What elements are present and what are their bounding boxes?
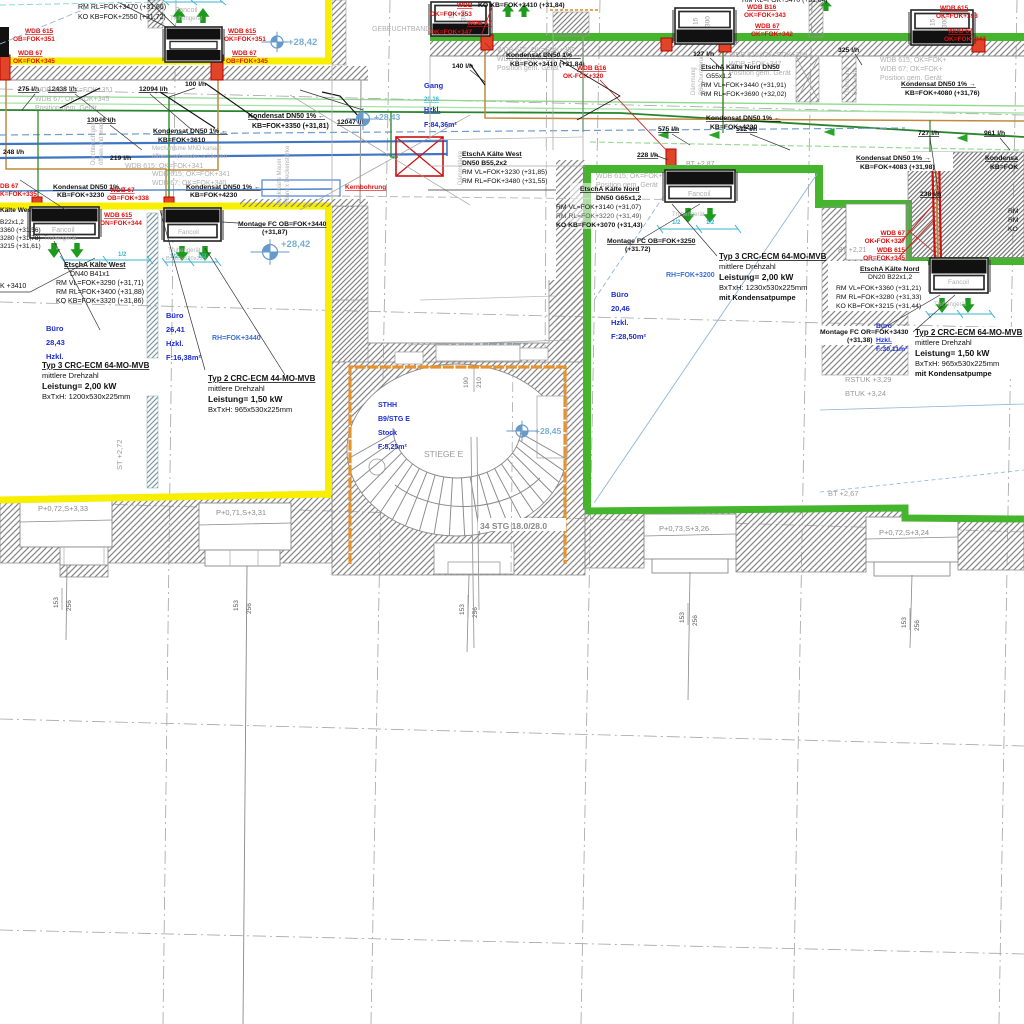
svg-text:mit Kondensatpumpe: mit Kondensatpumpe — [719, 293, 796, 302]
svg-text:3360 (+31,56): 3360 (+31,56) — [0, 227, 41, 234]
svg-text:256: 256 — [692, 615, 699, 626]
svg-text:OK=FOK+347: OK=FOK+347 — [430, 29, 472, 36]
svg-text:P+0,72,S+3,33: P+0,72,S+3,33 — [38, 504, 88, 513]
svg-text:228 l/h: 228 l/h — [637, 152, 658, 159]
svg-text:KB=FOK+3410 (+31,84): KB=FOK+3410 (+31,84) — [510, 61, 585, 68]
svg-text:mittlere Drehzahl: mittlere Drehzahl — [208, 384, 265, 393]
svg-text:Fancoil: Fancoil — [175, 7, 198, 14]
svg-text:STIEGE E: STIEGE E — [424, 449, 464, 459]
svg-text:F:28,50m²: F:28,50m² — [611, 332, 647, 341]
svg-text:WDB 67: WDB 67 — [467, 20, 492, 27]
svg-text:KB=FOK+3610: KB=FOK+3610 — [158, 137, 205, 144]
svg-text:RM VL=FOK+3440 (+31,91): RM VL=FOK+3440 (+31,91) — [701, 82, 786, 89]
svg-text:1/2: 1/2 — [706, 220, 715, 226]
svg-text:3215 (+31,61): 3215 (+31,61) — [0, 243, 41, 250]
svg-text:OB=FOK+345: OB=FOK+345 — [226, 58, 268, 65]
svg-text:ON=FOK+344: ON=FOK+344 — [100, 220, 142, 227]
svg-text:Leistung= 1,50 kW: Leistung= 1,50 kW — [208, 394, 283, 404]
svg-text:Gang: Gang — [424, 81, 444, 90]
svg-text:WDB 67; OK=FOK+: WDB 67; OK=FOK+ — [880, 66, 943, 73]
svg-text:EtschA Kälte Nord: EtschA Kälte Nord — [860, 266, 919, 273]
svg-text:F:16,38m²: F:16,38m² — [166, 353, 202, 362]
svg-text:Typ 3 CRC-ECM 64-MO-MVB: Typ 3 CRC-ECM 64-MO-MVB — [42, 361, 150, 370]
svg-text:OK=FOK+345: OK=FOK+345 — [13, 58, 55, 65]
svg-text:153: 153 — [901, 617, 908, 628]
svg-text:727 l/h: 727 l/h — [918, 130, 939, 137]
svg-text:WDB B16: WDB B16 — [577, 65, 607, 72]
svg-text:KO KB=FOK+3215 (+31,44): KO KB=FOK+3215 (+31,44) — [836, 303, 921, 310]
svg-text:OR=FOK+345: OR=FOK+345 — [863, 255, 905, 262]
svg-text:256: 256 — [914, 620, 921, 631]
svg-text:BTUK +3,24: BTUK +3,24 — [845, 389, 886, 398]
svg-text:1/2: 1/2 — [672, 220, 681, 226]
svg-text:1/2: 1/2 — [198, 254, 207, 260]
svg-text:OK=FOK+342: OK=FOK+342 — [751, 31, 793, 38]
svg-text:Montage FC OB=FOK+3250: Montage FC OB=FOK+3250 — [607, 238, 696, 245]
svg-text:RM RL=FOK+3480 (+31,55): RM RL=FOK+3480 (+31,55) — [462, 178, 548, 185]
svg-text:Kondensat DN50 1% ←: Kondensat DN50 1% ← — [153, 128, 228, 135]
svg-text:EtschA Kälte Nord DN50: EtschA Kälte Nord DN50 — [701, 64, 780, 71]
svg-text:Truhengerät: Truhengerät — [672, 212, 705, 218]
svg-text:WDB B16: WDB B16 — [747, 4, 777, 11]
svg-text:WDB 615; OK=FOK+341: WDB 615; OK=FOK+341 — [152, 171, 230, 178]
svg-text:Büro: Büro — [611, 290, 629, 299]
svg-text:KB=FOK+4080 (+31,76): KB=FOK+4080 (+31,76) — [905, 90, 980, 97]
svg-text:RM VL=FOK+3230 (+31,85): RM VL=FOK+3230 (+31,85) — [462, 169, 547, 176]
svg-text:210: 210 — [476, 377, 483, 388]
svg-text:961 l/h: 961 l/h — [984, 130, 1005, 137]
svg-text:KB=FOK: KB=FOK — [990, 164, 1018, 171]
svg-text:Hzkl.: Hzkl. — [611, 318, 629, 327]
svg-text:Büro: Büro — [166, 311, 184, 320]
svg-text:(+31.72): (+31.72) — [625, 246, 651, 253]
svg-text:OK=FOK+347: OK=FOK+347 — [944, 36, 986, 43]
svg-text:20,46: 20,46 — [611, 304, 630, 313]
svg-text:575 l/h: 575 l/h — [658, 126, 679, 133]
svg-text:Typ 2 CRC-ECM 44-MO-MVB: Typ 2 CRC-ECM 44-MO-MVB — [208, 374, 316, 383]
svg-text:WDB 615; OK=FOK+: WDB 615; OK=FOK+ — [596, 173, 663, 180]
svg-text:STHH: STHH — [378, 402, 397, 409]
svg-text:Fancoil: Fancoil — [688, 191, 711, 198]
svg-text:mittlere Drehzahl: mittlere Drehzahl — [915, 338, 972, 347]
svg-text:BxTxH: 1230x530x225mm: BxTxH: 1230x530x225mm — [719, 283, 807, 292]
svg-text:KB=FOK+3230: KB=FOK+3230 — [57, 192, 104, 199]
svg-text:RM RL=FOK+3280 (+31,33): RM RL=FOK+3280 (+31,33) — [836, 294, 922, 301]
svg-text:mit Kondensatpumpe: mit Kondensatpumpe — [915, 369, 992, 378]
svg-text:153: 153 — [459, 604, 466, 615]
svg-text:DB 67: DB 67 — [0, 183, 19, 190]
svg-text:RM VL=FOK+3360 (+31,21): RM VL=FOK+3360 (+31,21) — [836, 285, 921, 292]
svg-text:Rückwärts Mauer: Rückwärts Mauer — [277, 158, 283, 205]
svg-text:EtschA Kälte West: EtschA Kälte West — [462, 151, 522, 158]
svg-text:DN50 G65x1,2: DN50 G65x1,2 — [596, 195, 642, 202]
svg-text:Stock: Stock — [378, 430, 397, 437]
svg-text:ST +2,72: ST +2,72 — [115, 439, 124, 470]
svg-text:(+31,87): (+31,87) — [262, 229, 288, 236]
svg-text:WDB 67: WDB 67 — [110, 187, 135, 194]
svg-text:K +3410: K +3410 — [0, 283, 26, 290]
svg-text:KO KB=FOK+3410 (+31,84): KO KB=FOK+3410 (+31,84) — [478, 2, 565, 9]
svg-text:OB=FOK+351: OB=FOK+351 — [13, 36, 55, 43]
svg-text:WDB 615: WDB 615 — [877, 247, 906, 254]
svg-text:Leistung= 2,00 kW: Leistung= 2,00 kW — [42, 381, 117, 391]
svg-text:P+0,71,S+3,31: P+0,71,S+3,31 — [216, 508, 266, 517]
svg-text:KB=FOK+4230: KB=FOK+4230 — [190, 192, 237, 199]
svg-text:1/2: 1/2 — [118, 252, 127, 258]
svg-text:Büro: Büro — [876, 323, 892, 330]
svg-text:100 l/h: 100 l/h — [185, 81, 206, 88]
svg-text:KO KB=FOK+3070 (+31,43): KO KB=FOK+3070 (+31,43) — [556, 222, 643, 229]
svg-text:Kondensat DN50 1% ←: Kondensat DN50 1% ← — [706, 115, 781, 122]
svg-text:Truhengerät: Truhengerät — [44, 236, 77, 242]
svg-text:öffnen und wieder: öffnen und wieder — [99, 117, 105, 165]
svg-text:KB=FOK+4083 (+31,98): KB=FOK+4083 (+31,98) — [860, 164, 935, 171]
svg-text:190: 190 — [463, 377, 470, 388]
svg-text:1/2: 1/2 — [170, 254, 179, 260]
svg-text:256: 256 — [246, 603, 253, 614]
svg-text:12094 l/h: 12094 l/h — [139, 86, 168, 93]
svg-text:Kondensat DN50 1% →: Kondensat DN50 1% → — [856, 155, 931, 162]
svg-text:256: 256 — [66, 600, 73, 611]
svg-text:öffnen und wieder schließen: öffnen und wieder schließen — [152, 154, 227, 160]
svg-text:B22x1,2: B22x1,2 — [0, 219, 24, 226]
svg-text:153: 153 — [679, 612, 686, 623]
svg-text:BT +2,21: BT +2,21 — [838, 247, 867, 254]
svg-text:P+0,72,S+3,24: P+0,72,S+3,24 — [879, 528, 929, 537]
svg-text:OK=FOK+353: OK=FOK+353 — [430, 11, 472, 18]
svg-text:DN20 B22x1,2: DN20 B22x1,2 — [868, 274, 912, 281]
svg-text:Kernbohrung: Kernbohrung — [345, 184, 386, 191]
svg-text:WDB 615; OK=FOK+369: WDB 615; OK=FOK+369 — [729, 52, 807, 59]
svg-text:RH=FOK+3440: RH=FOK+3440 — [212, 335, 261, 342]
svg-text:B60 Durchbruch: B60 Durchbruch — [699, 52, 705, 95]
svg-text:BT +2,87: BT +2,87 — [686, 161, 715, 168]
svg-text:(+31,38): (+31,38) — [847, 337, 873, 344]
svg-text:RM: RM — [1008, 217, 1019, 224]
svg-text:mittlere Drehzahl: mittlere Drehzahl — [42, 371, 99, 380]
svg-text:RM RL=FOK+3220 (+31,49): RM RL=FOK+3220 (+31,49) — [556, 213, 642, 220]
svg-text:Durchbruch gem.: Durchbruch gem. — [91, 119, 97, 165]
svg-text:153: 153 — [53, 597, 60, 608]
svg-text:RM RL=FOK+3690 (+32,02): RM RL=FOK+3690 (+32,02) — [701, 91, 787, 98]
svg-text:Position gem. Gerät: Position gem. Gerät — [596, 182, 658, 189]
svg-text:Kälte West: Kälte West — [0, 207, 34, 214]
svg-text:Fancoil: Fancoil — [948, 279, 970, 286]
svg-text:P+0,73,S+3,26: P+0,73,S+3,26 — [659, 524, 709, 533]
svg-text:Position gem. Gerät: Position gem. Gerät — [35, 105, 97, 112]
svg-text:Mechanisme MND kanaal: Mechanisme MND kanaal — [152, 146, 221, 152]
svg-text:RM VL=FOK+3140 (+31,07): RM VL=FOK+3140 (+31,07) — [556, 204, 641, 211]
svg-text:RM RL=FOK+3470 (+31,64): RM RL=FOK+3470 (+31,64) — [742, 0, 828, 4]
svg-text:Position gem. Gerät: Position gem. Gerät — [729, 70, 791, 77]
svg-text:OK=FOK+393: OK=FOK+393 — [936, 13, 978, 20]
svg-text:Kondensat DN50 1% ←: Kondensat DN50 1% ← — [248, 113, 325, 120]
svg-text:WDB 67: WDB 67 — [18, 50, 43, 57]
svg-text:WDB: WDB — [457, 2, 473, 9]
svg-text:34 STG 18.0/28.0: 34 STG 18.0/28.0 — [480, 521, 547, 531]
svg-text:Typ 3 CRC-ECM 64-MO-MVB: Typ 3 CRC-ECM 64-MO-MVB — [719, 252, 827, 261]
svg-text:F:84,36m²: F:84,36m² — [424, 122, 457, 129]
svg-text:153: 153 — [233, 600, 240, 611]
svg-text:15: 15 — [692, 17, 699, 25]
svg-text:Fancoil: Fancoil — [52, 227, 75, 234]
svg-text:20,16: 20,16 — [424, 97, 440, 103]
svg-text:RM VL=FOK+3290 (+31,71): RM VL=FOK+3290 (+31,71) — [56, 280, 144, 287]
svg-text:Truhengerät: Truhengerät — [934, 302, 967, 308]
svg-text:127 l/h: 127 l/h — [693, 51, 714, 58]
svg-text:26,41: 26,41 — [166, 325, 185, 334]
svg-text:KO KB=FOK+3320 (+31,86): KO KB=FOK+3320 (+31,86) — [56, 298, 144, 305]
svg-text:WDB 67: WDB 67 — [880, 230, 905, 237]
svg-text:219 l/h: 219 l/h — [110, 155, 131, 162]
svg-text:Typ 2 CRC-ECM 64-MO-MVB: Typ 2 CRC-ECM 64-MO-MVB — [915, 328, 1023, 337]
svg-text:mittlere Drehzahl: mittlere Drehzahl — [719, 262, 776, 271]
svg-text:Montage FC OR=FOK+3430: Montage FC OR=FOK+3430 — [820, 329, 909, 336]
svg-text:EtschA Kälte West: EtschA Kälte West — [64, 262, 126, 269]
svg-text:KO: KO — [1008, 226, 1018, 233]
svg-text:325 l/h: 325 l/h — [838, 47, 859, 54]
svg-text:OK•FOK+327: OK•FOK+327 — [865, 238, 906, 245]
svg-text:512 l/h: 512 l/h — [736, 126, 757, 133]
svg-text:WDB 615: WDB 615 — [228, 28, 257, 35]
svg-text:RSTUK +3,29: RSTUK +3,29 — [845, 375, 891, 384]
svg-text:OK=FOK+343: OK=FOK+343 — [744, 12, 786, 19]
svg-text:+28,43: +28,43 — [374, 112, 401, 122]
svg-text:G55x1,2: G55x1,2 — [706, 73, 732, 80]
svg-text:OB=FOK+338: OB=FOK+338 — [107, 195, 149, 202]
svg-text:WDB 615: WDB 615 — [104, 212, 133, 219]
svg-text:WDB 67: WDB 67 — [948, 28, 973, 35]
svg-text:Hzkl.: Hzkl. — [166, 339, 184, 348]
svg-text:F:5,25m²: F:5,25m² — [378, 444, 407, 451]
svg-text:+28,42: +28,42 — [281, 239, 310, 250]
svg-text:Kondensat DN50 1% →: Kondensat DN50 1% → — [901, 81, 976, 88]
svg-text:Dämmung: Dämmung — [691, 67, 697, 95]
svg-text:Montage FC OB=FOK+3440: Montage FC OB=FOK+3440 — [238, 221, 327, 228]
svg-text:3280 (+31,78): 3280 (+31,78) — [0, 235, 41, 242]
svg-text:300: 300 — [704, 16, 711, 27]
svg-text:RM RL=FOK+3400 (+31,88): RM RL=FOK+3400 (+31,88) — [56, 289, 144, 296]
svg-text:BxTxH: 1200x530x225mm: BxTxH: 1200x530x225mm — [42, 392, 130, 401]
svg-text:WDB 615; OK=FOK+351: WDB 615; OK=FOK+351 — [35, 87, 113, 94]
svg-text:RH=FOK+3200: RH=FOK+3200 — [666, 272, 715, 279]
svg-text:Leistung= 2,00 kW: Leistung= 2,00 kW — [719, 272, 794, 282]
svg-text:Fancoil: Fancoil — [178, 229, 200, 236]
svg-text:Leistung= 1,50 kW: Leistung= 1,50 kW — [915, 348, 990, 358]
svg-text:KB=FOK+3350 (+31,81): KB=FOK+3350 (+31,81) — [252, 123, 329, 130]
svg-text:RM: RM — [1008, 208, 1019, 215]
svg-text:248 l/h: 248 l/h — [3, 149, 24, 156]
svg-text:Hzkl.: Hzkl. — [424, 107, 440, 114]
svg-text:BxTxH: 965x530x225mm: BxTxH: 965x530x225mm — [915, 359, 999, 368]
svg-text:K=FOK+335: K=FOK+335 — [0, 191, 37, 198]
svg-text:OK=FOK+351: OK=FOK+351 — [224, 36, 266, 43]
svg-text:238 l/h: 238 l/h — [920, 191, 941, 198]
svg-text:GEBEUCHTBAND: GEBEUCHTBAND — [372, 26, 430, 33]
svg-text:BT +2,67: BT +2,67 — [828, 489, 859, 498]
svg-text:Hzkl.: Hzkl. — [46, 352, 64, 361]
svg-text:Büro: Büro — [46, 324, 64, 333]
svg-text:WDB 67; OK=FOK+340: WDB 67; OK=FOK+340 — [152, 180, 226, 187]
svg-text:WDB 67: WDB 67 — [232, 50, 257, 57]
svg-text:BxTxH: 965x530x225mm: BxTxH: 965x530x225mm — [208, 405, 292, 414]
svg-text:WDB 67: WDB 67 — [755, 23, 780, 30]
svg-text:B9/STG E: B9/STG E — [378, 416, 410, 423]
svg-text:28,43: 28,43 — [46, 338, 65, 347]
svg-text:+28,45: +28,45 — [535, 426, 562, 436]
svg-text:WDB 615: WDB 615 — [940, 5, 969, 12]
svg-text:Hzkl.: Hzkl. — [876, 337, 892, 344]
svg-text:+28,42: +28,42 — [288, 37, 317, 48]
svg-text:WDB 615; OK=FOK+: WDB 615; OK=FOK+ — [880, 57, 947, 64]
svg-text:Kondensa: Kondensa — [985, 155, 1018, 162]
svg-text:Röhre x Deckenstärke: Röhre x Deckenstärke — [285, 145, 291, 205]
svg-text:Truhengerät: Truhengerät — [170, 16, 203, 22]
svg-text:Dämmstärke: Dämmstärke — [458, 150, 464, 185]
svg-text:F:30,11m²: F:30,11m² — [876, 346, 908, 353]
svg-text:WDB 615; OK=FOK+341: WDB 615; OK=FOK+341 — [125, 163, 203, 170]
svg-text:Kondensat DN50 1% →: Kondensat DN50 1% → — [506, 52, 581, 59]
svg-text:DN40 B41x1: DN40 B41x1 — [70, 271, 110, 278]
